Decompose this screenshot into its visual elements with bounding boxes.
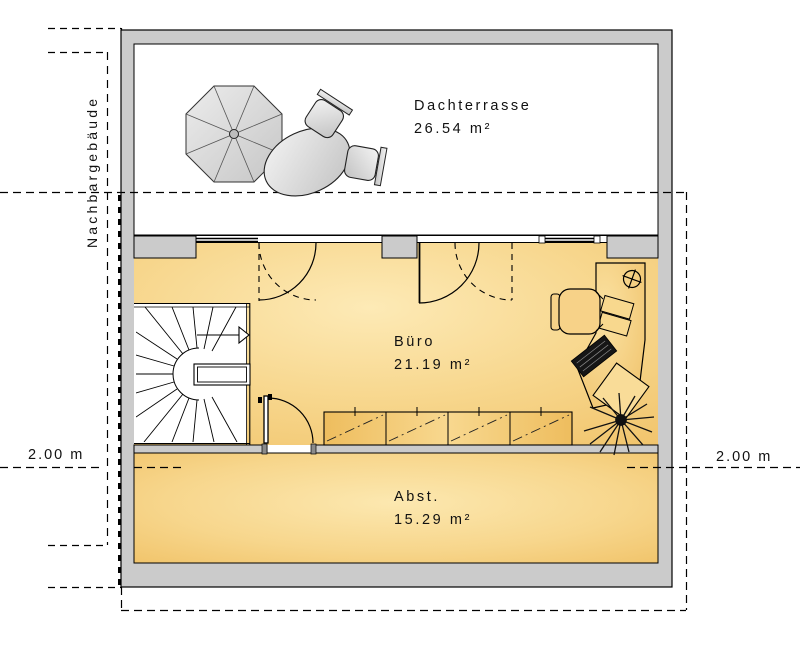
room-label-dachterrasse: Dachterrasse	[414, 98, 531, 114]
staircase	[134, 303, 250, 445]
room-area-buero: 21.19 m²	[394, 357, 472, 373]
neighbor-building-label: Nachbargebäude	[84, 96, 100, 248]
floor-plan-canvas: Dachterrasse 26.54 m² Büro 21.19 m² Abst…	[0, 0, 800, 654]
room-area-abst: 15.29 m²	[394, 512, 472, 528]
room-area-dachterrasse: 26.54 m²	[414, 121, 492, 137]
floor-plan-drawing: Dachterrasse 26.54 m² Büro 21.19 m² Abst…	[0, 0, 800, 654]
desk-chair	[551, 289, 603, 334]
dimension-label-left: 2.00 m	[28, 447, 84, 463]
dimension-label-right: 2.00 m	[716, 449, 772, 465]
sideboard-row	[324, 407, 572, 445]
room-label-abst: Abst.	[394, 489, 440, 505]
room-abst-floor	[134, 453, 658, 563]
room-label-buero: Büro	[394, 334, 435, 350]
